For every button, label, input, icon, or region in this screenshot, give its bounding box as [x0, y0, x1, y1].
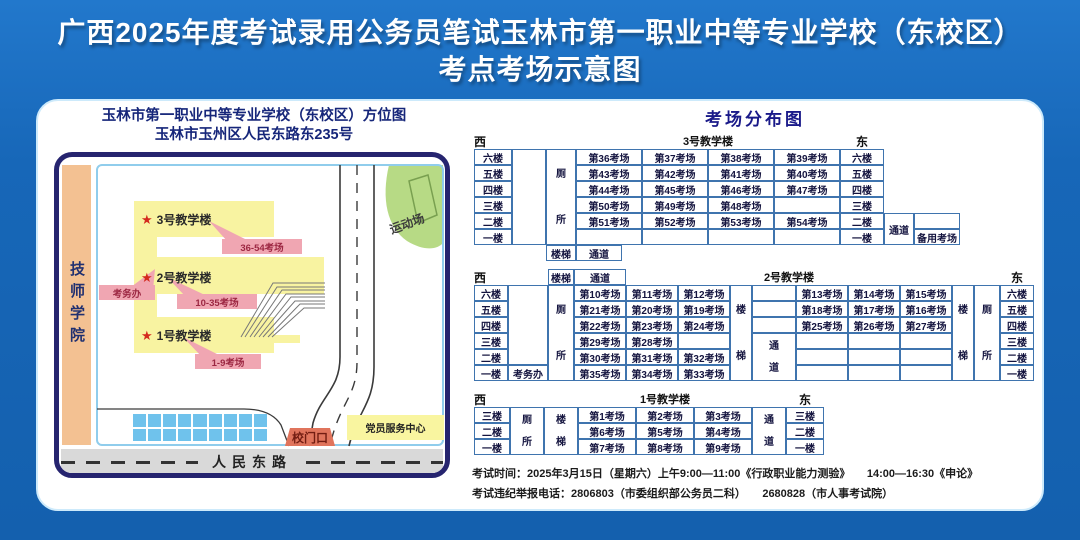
exam-room-cell: 第12考场: [678, 285, 730, 301]
exam-room-cell: 第9考场: [694, 439, 752, 455]
neighbor-college-label: 技师学院: [66, 261, 87, 349]
grid-cell: 六楼: [840, 149, 884, 165]
school-gate-label: 校门口: [285, 428, 335, 446]
shed-cell: [163, 429, 176, 442]
shed-cell: [193, 414, 206, 427]
grid-cell: [708, 229, 774, 245]
star-icon: ★: [141, 214, 153, 226]
exam-room-cell: 第21考场: [574, 301, 626, 317]
grid-cell: 一楼: [474, 439, 510, 455]
exam-distribution-table-2: 西楼梯通道2号教学楼东六楼厕所第10考场第11考场第12考场楼梯第13考场第14…: [472, 269, 1038, 381]
exam-room-cell: 第17考场: [848, 301, 900, 317]
exam-room-cell: 第42考场: [642, 165, 708, 181]
grid-cell: 楼梯: [952, 285, 974, 381]
shed-cell: [254, 429, 267, 442]
grid-cell: [752, 317, 796, 333]
exam-room-cell: 第20考场: [626, 301, 678, 317]
grid-cell: [914, 213, 960, 229]
grid-cell: 三楼: [1000, 333, 1034, 349]
content-panel: 玉林市第一职业中等专业学校（东校区）方位图 玉林市玉州区人民东路东235号 技师…: [36, 99, 1044, 511]
building-2-name: 2号教学楼: [157, 269, 212, 286]
shed-cell: [148, 414, 161, 427]
exam-room-cell: 第48考场: [708, 197, 774, 213]
shed-cell: [239, 429, 252, 442]
exam-room-cell: 第53考场: [708, 213, 774, 229]
table-header-cell: 3号教学楼: [576, 133, 840, 149]
exam-room-cell: 第24考场: [678, 317, 730, 333]
campus-map-card: 技师学院: [54, 152, 450, 478]
grid-cell: 五楼: [1000, 301, 1034, 317]
exam-room-cell: 第43考场: [576, 165, 642, 181]
exam-room-cell: 第7考场: [578, 439, 636, 455]
exam-room-cell: 第25考场: [796, 317, 848, 333]
grid-cell: [752, 285, 796, 301]
grid-cell: 四楼: [840, 181, 884, 197]
grid-cell: 厕所: [974, 285, 1000, 381]
grid-cell: 厕所: [548, 285, 574, 381]
exam-room-cell: 第41考场: [708, 165, 774, 181]
exam-room-cell: 第33考场: [678, 365, 730, 381]
exam-room-cell: 第40考场: [774, 165, 840, 181]
grid-cell: [576, 229, 642, 245]
shed-cell: [224, 429, 237, 442]
star-icon: ★: [141, 330, 153, 342]
grid-cell: 四楼: [474, 181, 512, 197]
grid-cell: 二楼: [1000, 349, 1034, 365]
grid-cell: 二楼: [474, 349, 508, 365]
exam-room-cell: 第28考场: [626, 333, 678, 349]
grid-cell: 一楼: [786, 439, 824, 455]
exam-room-cell: 第26考场: [848, 317, 900, 333]
grid-cell: 三楼: [474, 407, 510, 423]
grid-cell: 厕所: [546, 149, 576, 245]
bike-shed-grid: [133, 414, 267, 441]
grid-cell: 一楼: [474, 365, 508, 381]
exam-room-cell: 第51考场: [576, 213, 642, 229]
shed-cell: [254, 414, 267, 427]
table-header-cell: 西: [474, 133, 512, 149]
shed-cell: [148, 429, 161, 442]
map-title-line2: 玉林市玉州区人民东路东235号: [48, 126, 460, 145]
grid-cell: 五楼: [474, 301, 508, 317]
exam-room-cell: 第6考场: [578, 423, 636, 439]
grid-cell: [774, 197, 840, 213]
exam-room-cell: 第10考场: [574, 285, 626, 301]
exam-room-cell: 第8考场: [636, 439, 694, 455]
exam-distribution-table-3: 西3号教学楼东六楼厕所第36考场第37考场第38考场第39考场六楼五楼第43考场…: [472, 133, 1038, 261]
grid-cell: 三楼: [840, 197, 884, 213]
grid-cell: 通道: [884, 213, 914, 245]
grid-cell: 楼梯: [546, 245, 576, 261]
exam-room-cell: 第22考场: [574, 317, 626, 333]
building-1-label: ★ 1号教学楼: [141, 327, 211, 344]
grid-cell: 通道: [576, 245, 622, 261]
exam-room-cell: 第15考场: [900, 285, 952, 301]
exam-room-cell: 第52考场: [642, 213, 708, 229]
exam-room-cell: 第35考场: [574, 365, 626, 381]
shed-cell: [193, 429, 206, 442]
main-road-label: 人民东路: [212, 452, 292, 472]
exam-room-cell: 第11考场: [626, 285, 678, 301]
shed-cell: [133, 429, 146, 442]
grid-cell: [900, 349, 952, 365]
poster-title-line2: 考点考场示意图: [0, 51, 1080, 88]
exam-room-cell: 第45考场: [642, 181, 708, 197]
table-header-cell: 西: [474, 391, 510, 407]
exam-info-footer: 考试时间：2025年3月15日（星期六）上午9:00—11:00《行政职业能力测…: [472, 464, 1038, 504]
building-3-rooms-tag: 36-54考场: [222, 239, 302, 254]
grid-cell: [678, 333, 730, 349]
exam-office-tag: 考务办: [99, 285, 155, 300]
table-header-cell: 西: [474, 269, 508, 285]
exam-room-cell: 第29考场: [574, 333, 626, 349]
grid-cell: 六楼: [474, 149, 512, 165]
exam-room-cell: 第4考场: [694, 423, 752, 439]
exam-room-cell: 第2考场: [636, 407, 694, 423]
grid-cell: 三楼: [786, 407, 824, 423]
grid-cell: [796, 349, 848, 365]
grid-cell: [848, 349, 900, 365]
building-2-label: ★ 2号教学楼: [141, 269, 211, 286]
shed-cell: [209, 429, 222, 442]
grid-cell: 楼梯: [548, 269, 574, 285]
grid-cell: [508, 285, 548, 365]
exam-room-cell: 第36考场: [576, 149, 642, 165]
grid-cell: 二楼: [474, 423, 510, 439]
shed-cell: [178, 414, 191, 427]
grid-cell: 二楼: [840, 213, 884, 229]
grid-cell: [796, 365, 848, 381]
exam-room-cell: 第14考场: [848, 285, 900, 301]
shed-cell: [239, 414, 252, 427]
distribution-title: 考场分布图: [472, 105, 1038, 130]
map-title-line1: 玉林市第一职业中等专业学校（东校区）方位图: [48, 107, 460, 126]
grid-cell: 二楼: [786, 423, 824, 439]
playground-label: 运动场: [387, 209, 427, 237]
grid-cell: 通道: [752, 333, 796, 381]
main-road-band: 人民东路: [61, 449, 443, 475]
grid-cell: 楼梯: [730, 285, 752, 381]
exam-room-cell: 第37考场: [642, 149, 708, 165]
grid-cell: 楼梯: [544, 407, 578, 455]
exam-time-line: 考试时间：2025年3月15日（星期六）上午9:00—11:00《行政职业能力测…: [472, 464, 1038, 484]
exam-room-cell: 第16考场: [900, 301, 952, 317]
exam-room-cell: 第47考场: [774, 181, 840, 197]
exam-room-cell: 备用考场: [914, 229, 960, 245]
shed-cell: [133, 414, 146, 427]
grid-cell: 考务办: [508, 365, 548, 381]
exam-room-cell: 第23考场: [626, 317, 678, 333]
grid-cell: 一楼: [474, 229, 512, 245]
grid-cell: [752, 301, 796, 317]
grid-cell: [774, 229, 840, 245]
building-3-label: ★ 3号教学楼: [141, 211, 211, 228]
service-center-label: 党员服务中心: [347, 415, 444, 440]
exam-distribution-table-1: 西1号教学楼东三楼厕所楼梯第1考场第2考场第3考场通道三楼二楼第6考场第5考场第…: [472, 391, 1038, 455]
table-header-cell: 1号教学楼: [578, 391, 752, 407]
exam-room-cell: 第31考场: [626, 349, 678, 365]
exam-room-cell: 第13考场: [796, 285, 848, 301]
building-1-name: 1号教学楼: [157, 327, 212, 344]
poster-title-line1: 广西2025年度考试录用公务员笔试玉林市第一职业中等专业学校（东校区）: [0, 14, 1080, 51]
exam-room-cell: 第1考场: [578, 407, 636, 423]
grid-cell: 三楼: [474, 197, 512, 213]
report-phone-line: 考试违纪举报电话：2806803（市委组织部公务员二科） 2680828（市人事…: [472, 484, 1038, 504]
shed-cell: [178, 429, 191, 442]
distribution-section: 考场分布图 西3号教学楼东六楼厕所第36考场第37考场第38考场第39考场六楼五…: [472, 105, 1038, 504]
grid-cell: 五楼: [474, 165, 512, 181]
shed-cell: [224, 414, 237, 427]
road-edge-right: [349, 165, 374, 446]
exam-room-cell: 第34考场: [626, 365, 678, 381]
road-dash-left: [61, 461, 198, 464]
grid-cell: [796, 333, 848, 349]
building-3-name: 3号教学楼: [157, 211, 212, 228]
grid-cell: 通道: [574, 269, 626, 285]
road-dash-right: [306, 461, 443, 464]
exam-room-cell: 第5考场: [636, 423, 694, 439]
table-header-cell: 东: [840, 133, 884, 149]
grid-cell: 四楼: [1000, 317, 1034, 333]
grid-cell: [848, 365, 900, 381]
star-icon: ★: [141, 272, 153, 284]
grid-cell: 六楼: [1000, 285, 1034, 301]
road-centerline: [330, 165, 357, 446]
exam-room-cell: 第18考场: [796, 301, 848, 317]
grid-cell: 五楼: [840, 165, 884, 181]
grid-cell: [512, 149, 546, 245]
grid-cell: 一楼: [840, 229, 884, 245]
exam-room-cell: 第44考场: [576, 181, 642, 197]
grid-cell: [900, 333, 952, 349]
exam-room-cell: 第3考场: [694, 407, 752, 423]
table-header-cell: 东: [1000, 269, 1034, 285]
building-2-rooms-tag: 10-35考场: [177, 294, 257, 309]
grid-cell: 六楼: [474, 285, 508, 301]
road-edge-left: [309, 165, 340, 446]
shed-cell: [209, 414, 222, 427]
grid-cell: 二楼: [474, 213, 512, 229]
grid-cell: [642, 229, 708, 245]
exam-room-cell: 第27考场: [900, 317, 952, 333]
exam-room-cell: 第32考场: [678, 349, 730, 365]
building-1-rooms-tag: 1-9考场: [195, 354, 261, 369]
map-section: 玉林市第一职业中等专业学校（东校区）方位图 玉林市玉州区人民东路东235号 技师…: [48, 107, 460, 478]
exam-room-cell: 第50考场: [576, 197, 642, 213]
exam-room-cell: 第46考场: [708, 181, 774, 197]
poster-title: 广西2025年度考试录用公务员笔试玉林市第一职业中等专业学校（东校区） 考点考场…: [0, 14, 1080, 88]
grid-cell: 厕所: [510, 407, 544, 455]
neighbor-college-strip: 技师学院: [62, 165, 91, 445]
grid-cell: 一楼: [1000, 365, 1034, 381]
small-structure-shape: [272, 335, 300, 343]
map-title: 玉林市第一职业中等专业学校（东校区）方位图 玉林市玉州区人民东路东235号: [48, 107, 460, 145]
exam-room-cell: 第54考场: [774, 213, 840, 229]
shed-cell: [163, 414, 176, 427]
table-header-cell: 东: [786, 391, 824, 407]
grid-cell: 通道: [752, 407, 786, 455]
exam-room-cell: 第30考场: [574, 349, 626, 365]
grid-cell: [900, 365, 952, 381]
exam-room-cell: 第49考场: [642, 197, 708, 213]
grid-cell: 三楼: [474, 333, 508, 349]
table-header-cell: 2号教学楼: [626, 269, 952, 285]
exam-room-cell: 第19考场: [678, 301, 730, 317]
exam-room-cell: 第39考场: [774, 149, 840, 165]
exam-room-cell: 第38考场: [708, 149, 774, 165]
grid-cell: 四楼: [474, 317, 508, 333]
grid-cell: [848, 333, 900, 349]
